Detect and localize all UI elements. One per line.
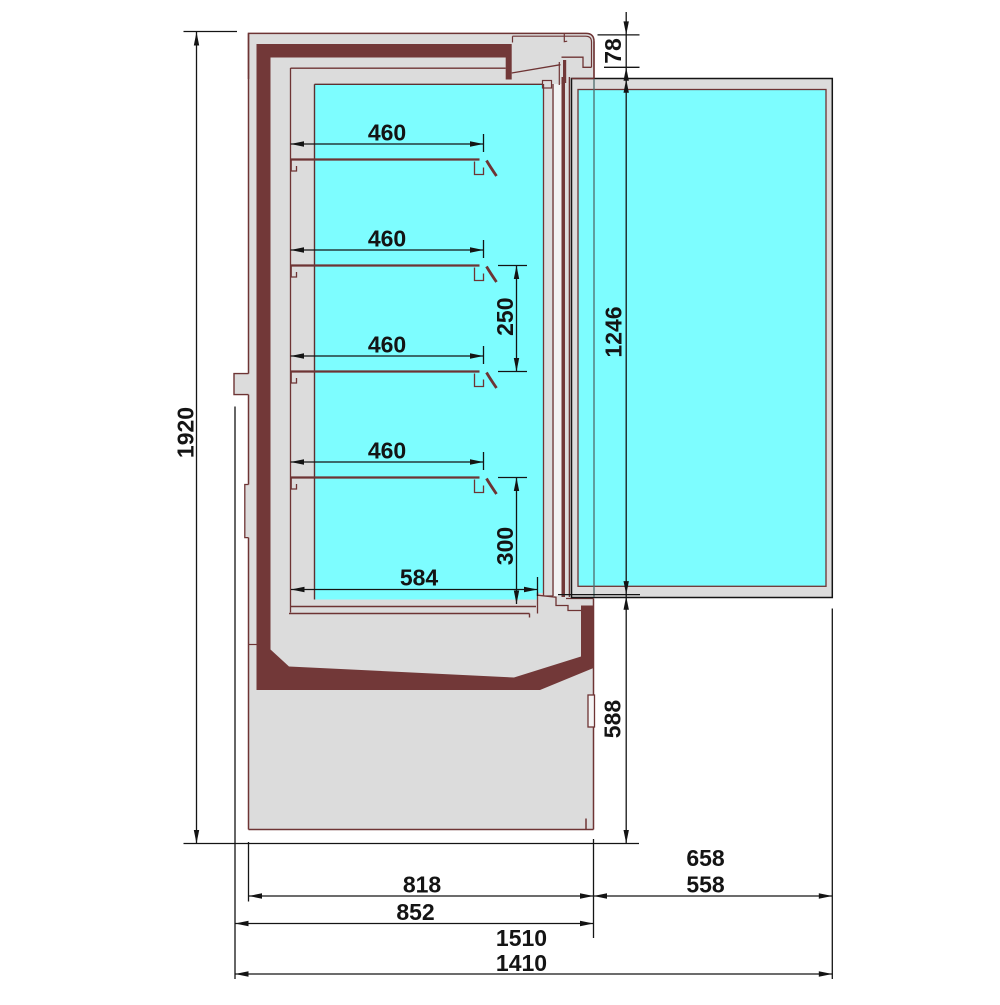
svg-text:1920: 1920 xyxy=(173,407,199,458)
svg-text:852: 852 xyxy=(396,899,434,925)
svg-text:78: 78 xyxy=(600,38,626,64)
svg-text:658: 658 xyxy=(686,845,725,871)
svg-text:460: 460 xyxy=(368,226,406,252)
svg-text:1246: 1246 xyxy=(601,306,627,357)
svg-text:588: 588 xyxy=(600,700,626,739)
svg-text:300: 300 xyxy=(492,527,518,565)
svg-text:460: 460 xyxy=(368,332,406,358)
svg-text:584: 584 xyxy=(400,564,439,590)
svg-text:1410: 1410 xyxy=(496,950,547,976)
svg-text:818: 818 xyxy=(403,872,442,898)
svg-text:460: 460 xyxy=(368,120,406,146)
svg-text:250: 250 xyxy=(492,298,518,336)
svg-text:1510: 1510 xyxy=(496,925,547,951)
svg-text:460: 460 xyxy=(368,438,406,464)
svg-text:558: 558 xyxy=(686,872,725,898)
